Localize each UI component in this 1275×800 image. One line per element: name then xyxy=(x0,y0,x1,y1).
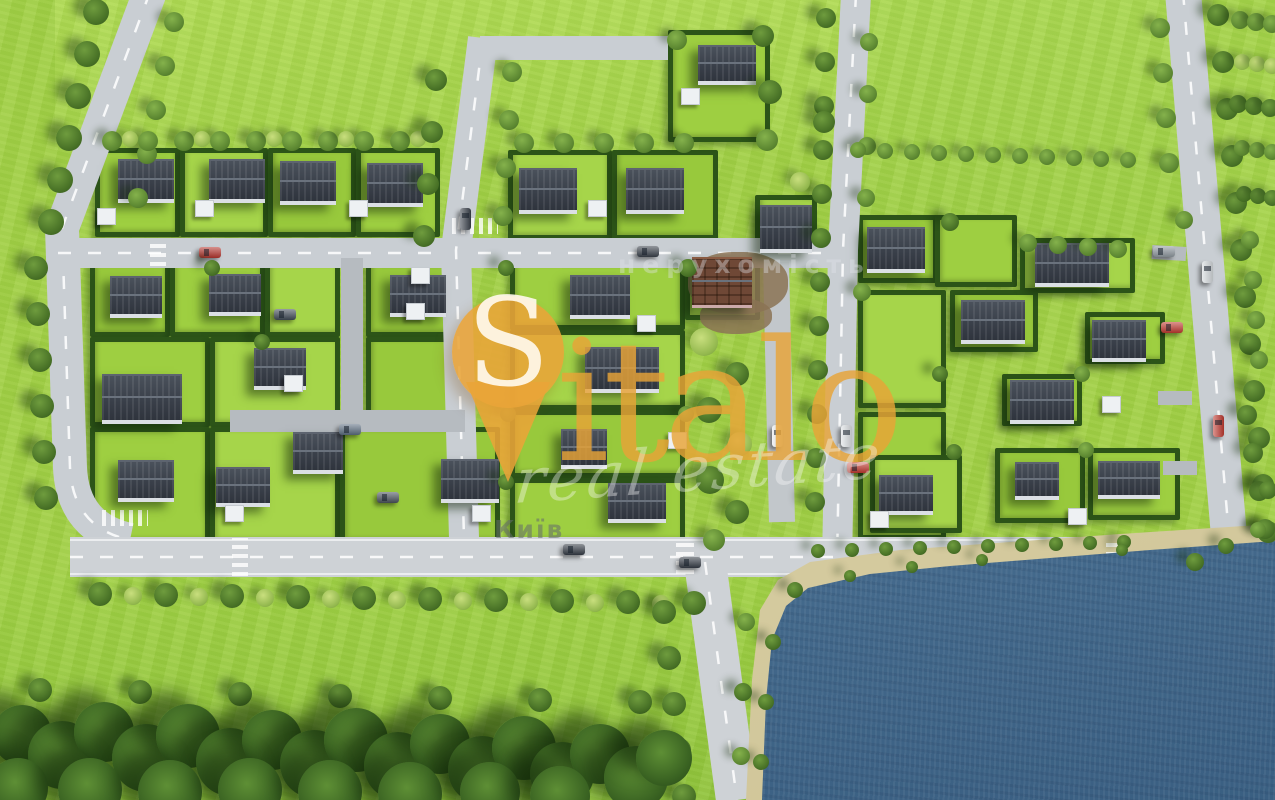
car-windshield xyxy=(852,464,857,471)
tree xyxy=(1066,150,1082,166)
house-roof xyxy=(118,460,174,502)
tree xyxy=(1243,443,1263,463)
tree xyxy=(1186,553,1204,571)
tree xyxy=(860,33,878,51)
tree xyxy=(1074,366,1090,382)
tree xyxy=(1159,153,1179,173)
tree xyxy=(981,539,995,553)
tree xyxy=(1083,536,1097,550)
car xyxy=(460,208,471,230)
car xyxy=(563,544,585,555)
tree xyxy=(502,62,522,82)
car-windshield xyxy=(1166,324,1171,331)
tree xyxy=(282,131,302,151)
car xyxy=(1202,261,1213,283)
tree xyxy=(808,360,828,380)
house-roof xyxy=(1015,462,1059,500)
house-roof xyxy=(561,429,607,469)
tree xyxy=(124,587,142,605)
tree xyxy=(496,158,516,178)
house-roof xyxy=(216,467,270,507)
tree xyxy=(931,145,947,161)
tree xyxy=(28,678,52,702)
tree xyxy=(1039,149,1055,165)
tree xyxy=(1250,522,1266,538)
tree xyxy=(1218,538,1234,554)
tree xyxy=(850,142,866,158)
tree xyxy=(853,283,871,301)
tree xyxy=(1120,152,1136,168)
tree xyxy=(354,131,374,151)
car xyxy=(841,425,852,447)
tree xyxy=(657,646,681,670)
tree xyxy=(682,591,706,615)
tree xyxy=(417,173,439,195)
road xyxy=(62,0,150,540)
tree xyxy=(877,143,893,159)
tree xyxy=(678,406,694,422)
tree xyxy=(88,582,112,606)
car-windshield xyxy=(1204,266,1211,271)
tree xyxy=(732,747,750,765)
tree xyxy=(586,594,604,612)
garden-shed xyxy=(1068,508,1087,525)
tree xyxy=(725,500,749,524)
tree xyxy=(256,589,274,607)
tree xyxy=(418,587,442,611)
tree xyxy=(787,582,803,598)
car xyxy=(199,247,221,258)
tree xyxy=(594,133,614,153)
tree xyxy=(352,586,376,610)
tree xyxy=(138,131,158,151)
house-roof xyxy=(570,275,630,319)
tree xyxy=(810,272,830,292)
car xyxy=(1153,246,1175,257)
tree xyxy=(946,444,962,460)
tree xyxy=(204,260,220,276)
tree xyxy=(1259,481,1275,499)
tree xyxy=(1244,271,1262,289)
tree xyxy=(122,131,138,147)
garden-shed xyxy=(195,200,214,217)
house-roof xyxy=(1010,380,1074,424)
tree xyxy=(1150,18,1170,38)
tree xyxy=(146,100,166,120)
tree xyxy=(816,8,836,28)
tree xyxy=(958,146,974,162)
garden-shed xyxy=(870,511,889,528)
car-windshield xyxy=(204,249,209,256)
tree xyxy=(805,492,825,512)
tree xyxy=(210,131,230,151)
tree xyxy=(1234,286,1256,308)
car-windshield xyxy=(642,248,647,255)
tree xyxy=(1079,238,1097,256)
house-roof xyxy=(367,163,423,207)
crosswalk xyxy=(232,538,248,576)
tree xyxy=(1243,380,1265,402)
tree xyxy=(1093,151,1109,167)
tree xyxy=(941,213,959,231)
tree xyxy=(806,448,826,468)
tree xyxy=(1247,311,1265,329)
tree xyxy=(1249,56,1265,72)
tree xyxy=(74,41,100,67)
house-roof xyxy=(1098,461,1160,499)
tree xyxy=(813,111,835,133)
house-roof xyxy=(961,300,1025,344)
car-windshield xyxy=(382,494,387,501)
house-roof xyxy=(209,274,261,316)
house-roof xyxy=(293,432,343,474)
forest-tree xyxy=(636,730,692,786)
tree xyxy=(812,184,832,204)
car-windshield xyxy=(1215,420,1222,425)
tree xyxy=(32,440,56,464)
house-roof xyxy=(280,161,336,205)
house-roof xyxy=(626,168,684,214)
garden-shed xyxy=(284,375,303,392)
tree xyxy=(1261,99,1275,117)
tree xyxy=(811,228,831,248)
tree xyxy=(500,406,516,422)
car xyxy=(679,557,701,568)
house-roof xyxy=(441,459,499,503)
house-roof xyxy=(1035,243,1109,287)
tree xyxy=(1234,54,1250,70)
tree xyxy=(102,131,122,151)
tree xyxy=(388,591,406,609)
car xyxy=(1161,322,1183,333)
tree xyxy=(932,366,948,382)
tree xyxy=(756,129,778,151)
tree xyxy=(1249,142,1265,158)
tree xyxy=(1234,140,1250,156)
garden-shed xyxy=(406,303,425,320)
tree xyxy=(737,613,755,631)
tree xyxy=(24,256,48,280)
tree xyxy=(246,131,266,151)
tree xyxy=(128,188,148,208)
car xyxy=(847,462,869,473)
tree xyxy=(1207,4,1229,26)
car-windshield xyxy=(344,426,349,433)
tree xyxy=(809,316,829,336)
tree xyxy=(28,348,52,372)
tree xyxy=(734,683,752,701)
crosswalk xyxy=(102,510,148,526)
tree xyxy=(1263,15,1275,33)
tree xyxy=(634,133,654,153)
tree xyxy=(628,690,652,714)
tree xyxy=(652,600,676,624)
tree xyxy=(454,592,472,610)
tree xyxy=(758,80,782,104)
car-windshield xyxy=(1158,248,1163,255)
tree xyxy=(550,589,574,613)
tree xyxy=(1019,234,1037,252)
crosswalk xyxy=(150,240,166,266)
tree xyxy=(728,432,752,456)
tree xyxy=(690,328,718,356)
tree xyxy=(906,561,918,573)
tree xyxy=(498,474,514,490)
car-windshield xyxy=(843,430,850,435)
tree xyxy=(696,397,722,423)
construction-house-roof xyxy=(692,257,752,308)
tree xyxy=(1116,544,1128,556)
tree xyxy=(328,684,352,708)
car xyxy=(637,246,659,257)
tree xyxy=(807,404,827,424)
garden-shed xyxy=(472,505,491,522)
tree xyxy=(1237,405,1257,425)
tree xyxy=(266,131,282,147)
tree xyxy=(421,121,443,143)
tree xyxy=(1078,442,1094,458)
garden-shed xyxy=(588,200,607,217)
car-windshield xyxy=(684,559,689,566)
garden-shed xyxy=(668,432,687,449)
crosswalk xyxy=(452,218,498,234)
tree xyxy=(1012,148,1028,164)
tree xyxy=(947,540,961,554)
aerial-masterplan-render: нерухомість Київ S italo real estate xyxy=(0,0,1275,800)
tree xyxy=(859,85,877,103)
tree xyxy=(499,110,519,130)
tree xyxy=(425,69,447,91)
garden-shed xyxy=(411,267,430,284)
tree xyxy=(1015,538,1029,552)
tree xyxy=(758,694,774,710)
tree xyxy=(174,131,194,151)
garden-shed xyxy=(637,315,656,332)
tree xyxy=(765,634,781,650)
tree xyxy=(520,593,538,611)
car-windshield xyxy=(279,311,284,318)
house-roof xyxy=(209,159,265,203)
tree xyxy=(811,544,825,558)
tree xyxy=(194,131,210,147)
tree xyxy=(976,554,988,566)
tree xyxy=(30,394,54,418)
tree xyxy=(790,172,810,192)
tree xyxy=(753,754,769,770)
car-windshield xyxy=(568,546,573,553)
tree xyxy=(128,680,152,704)
garden-shed xyxy=(681,88,700,105)
car xyxy=(377,492,399,503)
tree xyxy=(26,302,50,326)
tree xyxy=(679,259,697,277)
tree xyxy=(1175,211,1193,229)
tree xyxy=(1264,190,1275,206)
tree xyxy=(1250,351,1268,369)
tree xyxy=(428,686,452,710)
car xyxy=(1213,415,1224,437)
tree xyxy=(493,206,513,226)
tree xyxy=(338,131,354,147)
tree xyxy=(1049,236,1067,254)
tree xyxy=(390,131,410,151)
tree xyxy=(696,466,724,494)
tree xyxy=(322,590,340,608)
tree xyxy=(1156,108,1176,128)
tree xyxy=(554,133,574,153)
tree xyxy=(752,25,774,47)
tree xyxy=(1109,240,1127,258)
car xyxy=(274,309,296,320)
tree xyxy=(844,570,856,582)
tree xyxy=(38,209,64,235)
tree xyxy=(616,590,640,614)
tree xyxy=(879,542,893,556)
house-roof xyxy=(585,347,659,393)
tree xyxy=(34,486,58,510)
house-roof xyxy=(760,205,812,253)
tree xyxy=(220,584,244,608)
tree xyxy=(164,12,184,32)
house-roof xyxy=(867,227,925,273)
tree xyxy=(1264,144,1275,160)
car xyxy=(339,424,361,435)
house-roof xyxy=(698,45,756,85)
garden-shed xyxy=(225,505,244,522)
tree xyxy=(65,83,91,109)
house-roof xyxy=(102,374,182,424)
tree xyxy=(667,30,687,50)
tree xyxy=(498,260,514,276)
tree xyxy=(286,585,310,609)
tree xyxy=(662,692,686,716)
house-roof xyxy=(1092,320,1146,362)
garden-shed xyxy=(1102,396,1121,413)
tree xyxy=(857,189,875,207)
car-windshield xyxy=(462,213,469,218)
tree xyxy=(1153,63,1173,83)
tree xyxy=(703,529,725,551)
tree xyxy=(83,0,109,25)
car-windshield xyxy=(774,430,781,435)
tree xyxy=(254,334,270,350)
tree xyxy=(155,56,175,76)
car xyxy=(772,425,783,447)
tree xyxy=(514,133,534,153)
house-roof xyxy=(110,276,162,318)
tree xyxy=(845,543,859,557)
tree xyxy=(1264,58,1275,74)
garden-shed xyxy=(97,208,116,225)
tree xyxy=(413,225,435,247)
tree xyxy=(913,541,927,555)
tree xyxy=(985,147,1001,163)
tree xyxy=(674,133,694,153)
tree xyxy=(1241,231,1259,249)
tree xyxy=(228,682,252,706)
tree xyxy=(318,131,338,151)
tree xyxy=(1049,537,1063,551)
tree xyxy=(904,144,920,160)
tree xyxy=(154,583,178,607)
tree xyxy=(813,140,833,160)
tree xyxy=(1212,51,1234,73)
tree xyxy=(47,167,73,193)
tree xyxy=(725,362,749,386)
tree xyxy=(56,125,82,151)
house-roof xyxy=(608,483,666,523)
tree xyxy=(484,588,508,612)
tree xyxy=(190,588,208,606)
house-roof xyxy=(879,475,933,515)
tree xyxy=(528,688,552,712)
garden-shed xyxy=(349,200,368,217)
house-roof xyxy=(519,168,577,214)
tree xyxy=(815,52,835,72)
